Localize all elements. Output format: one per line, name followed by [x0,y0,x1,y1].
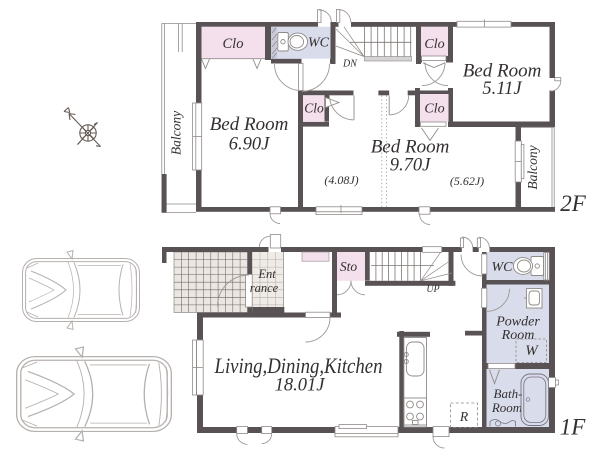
svg-text:(4.08J): (4.08J) [324,173,358,187]
svg-text:Living,Dining,Kitchen: Living,Dining,Kitchen [214,353,383,378]
svg-text:Sto: Sto [340,259,358,274]
svg-text:rance: rance [250,281,279,295]
svg-text:Clo: Clo [424,37,444,52]
svg-text:Bed Room: Bed Room [210,114,289,135]
svg-text:Clo: Clo [223,36,244,52]
svg-text:9.70J: 9.70J [390,156,431,176]
svg-text:Clo: Clo [304,101,324,116]
svg-text:6.90J: 6.90J [229,135,270,155]
svg-text:Bed Room: Bed Room [371,137,450,158]
svg-text:UP: UP [426,284,439,295]
svg-text:Room: Room [491,400,522,415]
svg-text:WC: WC [492,260,514,275]
svg-text:W: W [525,343,539,359]
svg-text:Ent: Ent [257,267,276,281]
svg-text:Balcony: Balcony [525,145,540,189]
svg-text:2F: 2F [560,191,587,216]
svg-text:1F: 1F [560,415,587,440]
svg-text:(5.62J): (5.62J) [450,174,484,188]
svg-text:WC: WC [308,36,330,51]
svg-text:Room: Room [501,328,535,343]
svg-text:DN: DN [342,59,358,70]
svg-text:R: R [459,409,469,424]
svg-text:18.01J: 18.01J [275,376,326,396]
svg-text:Clo: Clo [424,102,444,117]
svg-text:Bath-: Bath- [494,386,523,401]
svg-text:Balcony: Balcony [169,111,184,155]
svg-text:5.11J: 5.11J [482,79,522,99]
